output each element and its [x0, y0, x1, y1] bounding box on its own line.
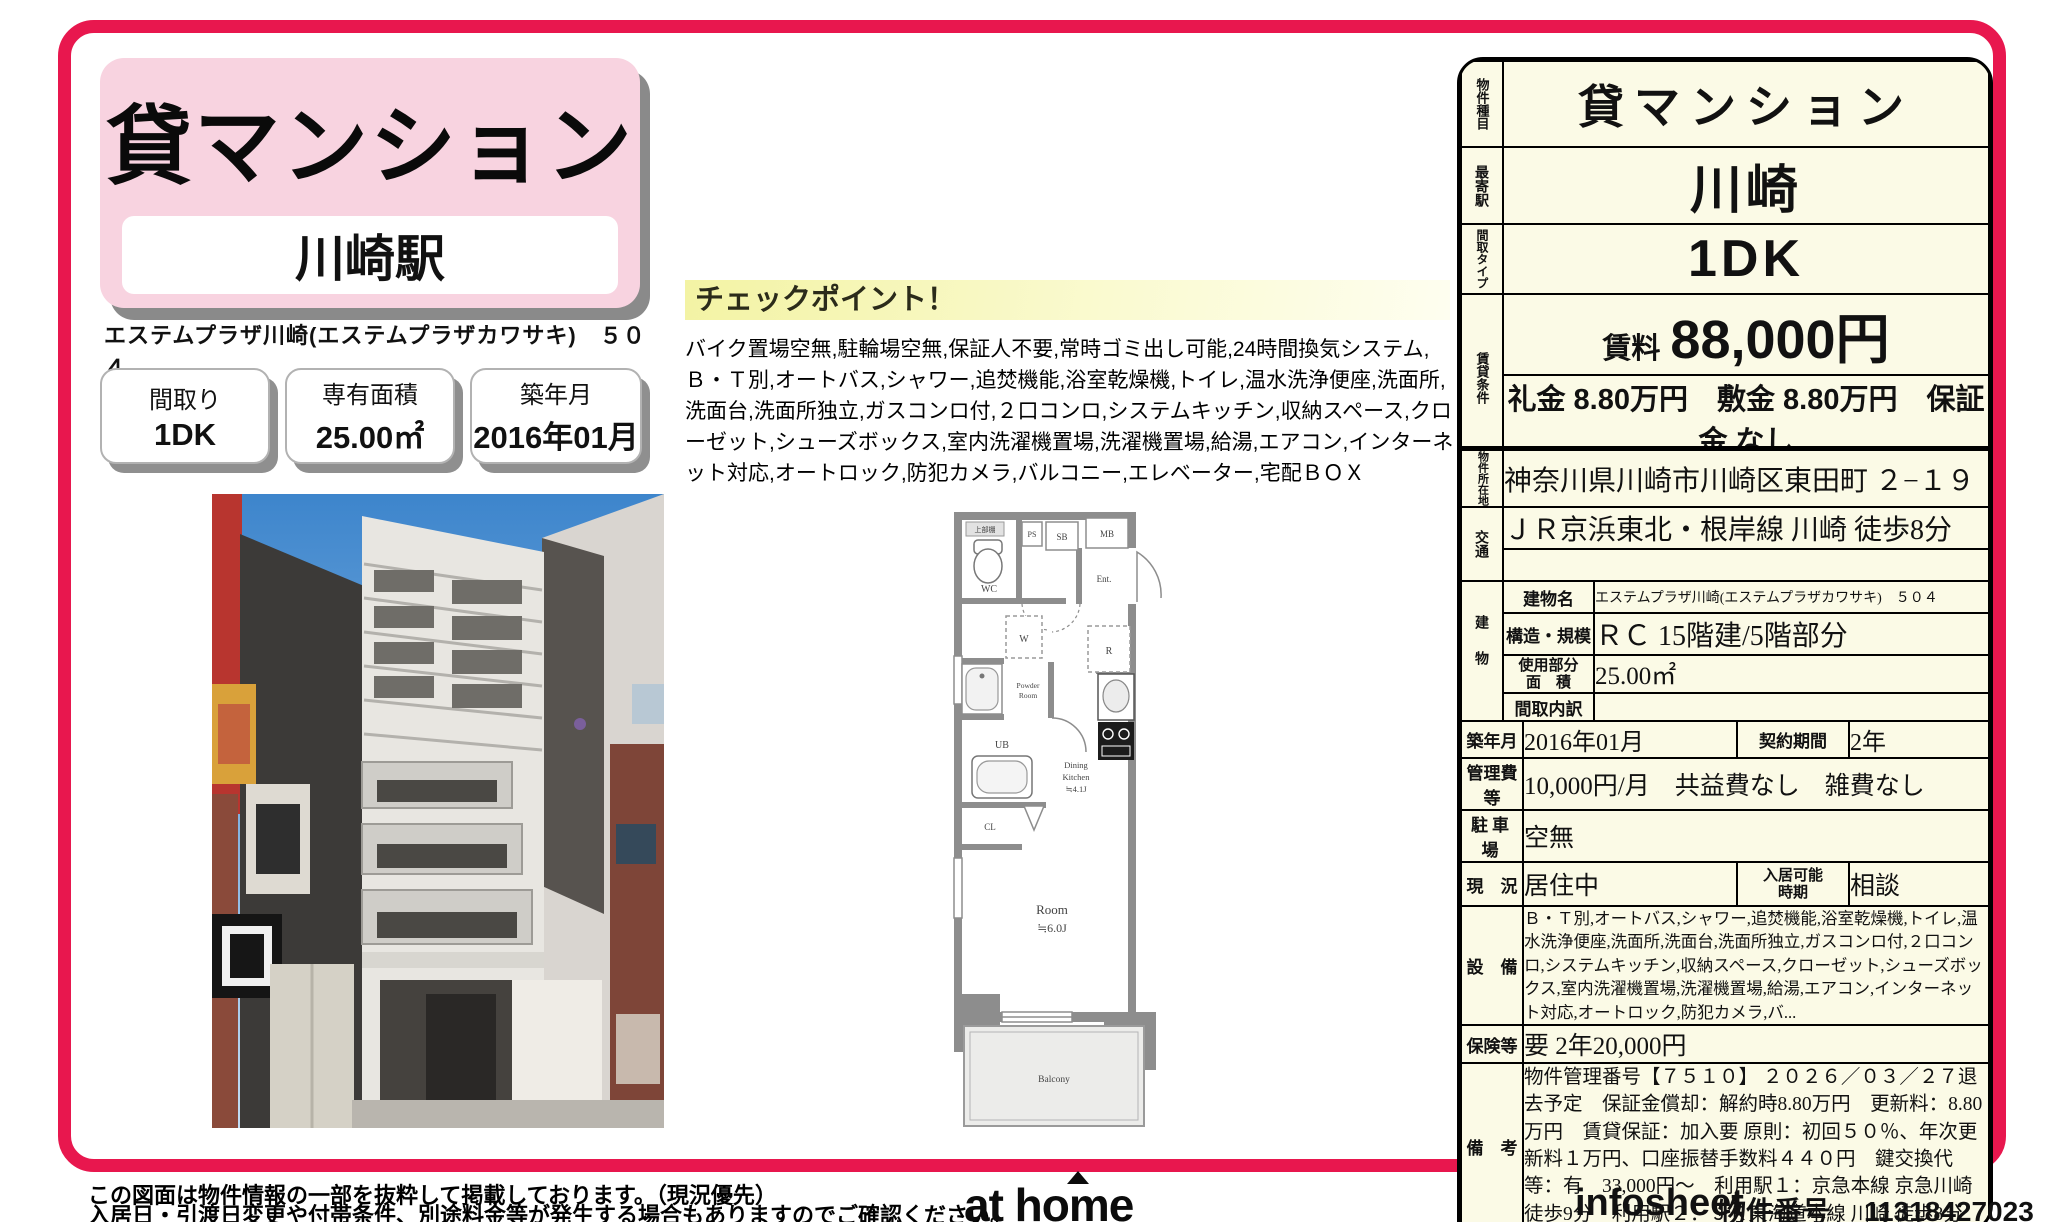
station-box: 川崎駅	[122, 216, 618, 294]
property-type-title: 貸マンション	[100, 76, 640, 201]
label-layout-breakdown: 間取内訳	[1503, 693, 1594, 721]
label-structure: 構造・規模	[1503, 613, 1594, 655]
value-contract-period: 2年	[1849, 721, 1989, 758]
value-access-2	[1503, 549, 1989, 581]
plan-label-washer: W	[1019, 634, 1029, 645]
footer-note-2: 入居日・引渡日変更や付帯条件、別途料金等が発生する場合もありますのでご確認くださ…	[88, 1198, 1012, 1222]
value-move-in: 相談	[1849, 862, 1989, 906]
station-name: 川崎駅	[295, 219, 445, 291]
summary-label: 間取り	[149, 380, 221, 415]
label-rental-terms: 賃貸条件	[1461, 294, 1503, 461]
plan-label-room-1: Room	[1036, 902, 1068, 917]
plan-label-mb: MB	[1100, 529, 1114, 539]
label-location: 物件所在地	[1461, 450, 1503, 507]
plan-label-ub: UB	[995, 740, 1009, 751]
label-property-type: 物件種目	[1461, 61, 1503, 147]
plan-label-room-2: ≒6.0J	[1037, 921, 1067, 935]
plan-label-powder-1: Powder	[1017, 681, 1040, 690]
athome-logo-text: at home	[964, 1179, 1133, 1222]
property-number: 物件番号11318427023	[1718, 1190, 2034, 1222]
plan-label-dk-3: ≒4.1J	[1065, 784, 1087, 794]
detail-table: 物件所在地 神奈川県川崎市川崎区東田町 ２−１９ 交通 ＪＲ京浜東北・根岸線 川…	[1457, 446, 1993, 1222]
summary-value: 1DK	[154, 417, 216, 453]
label-remarks: 備 考	[1461, 1063, 1523, 1222]
summary-label: 専有面積	[322, 375, 418, 410]
label-contract-period: 契約期間	[1737, 721, 1849, 758]
value-nearest-station: 川崎	[1503, 147, 1989, 224]
value-building-name: エステムプラザ川崎(エステムプラザカワサキ) ５０４	[1594, 581, 1989, 613]
building-photo	[212, 494, 664, 1128]
value-parking: 空無	[1523, 810, 1989, 862]
label-building: 建物	[1461, 581, 1503, 721]
value-rent: 賃料88,000円	[1503, 294, 1989, 375]
summary-label: 築年月	[520, 375, 592, 410]
checkpoint-title: チェックポイント！	[685, 280, 1450, 320]
label-access: 交通	[1461, 507, 1503, 581]
value-layout-type: 1DK	[1503, 224, 1989, 294]
summary-value: 2016年01月	[473, 412, 638, 457]
athome-logo: at home	[964, 1178, 1133, 1222]
plan-label-shelf: 上部棚	[975, 525, 996, 534]
value-location: 神奈川県川崎市川崎区東田町 ２−１９	[1503, 450, 1989, 507]
summary-box-built: 築年月 2016年01月	[470, 368, 642, 464]
value-insurance: 要 2年20,000円	[1523, 1025, 1989, 1063]
floor-plan: 上部棚 PS SB MB WC Ent. W R Powder Room	[952, 506, 1164, 1152]
label-insurance: 保険等	[1461, 1025, 1523, 1063]
value-structure: ＲＣ 15階建/5階部分	[1594, 613, 1989, 655]
value-current-status: 居住中	[1523, 862, 1737, 906]
summary-value: 25.00㎡	[316, 412, 425, 457]
plan-label-fridge: R	[1106, 646, 1113, 657]
value-used-area: 25.00㎡	[1594, 655, 1989, 693]
plan-label-ps: PS	[1028, 530, 1037, 539]
label-parking: 駐車場	[1461, 810, 1523, 862]
plan-label-dk-1: Dining	[1064, 760, 1088, 770]
headline-table: 物件種目 貸マンション 最寄駅 川崎 間取タイプ 1DK 賃貸条件 賃料88,0…	[1457, 57, 1993, 465]
plan-label-balcony: Balcony	[1038, 1075, 1070, 1085]
label-built: 築年月	[1461, 721, 1523, 758]
property-number-label: 物件番号	[1718, 1196, 1830, 1222]
plan-label-cl: CL	[984, 822, 996, 832]
label-building-name: 建物名	[1503, 581, 1594, 613]
rent-label: 賃料	[1602, 333, 1660, 365]
summary-box-area: 専有面積 25.00㎡	[285, 368, 455, 464]
plan-label-dk-2: Kitchen	[1063, 772, 1091, 782]
plan-label-entrance: Ent.	[1097, 574, 1112, 584]
plan-label-sb: SB	[1056, 532, 1067, 542]
plan-label-powder-2: Room	[1019, 691, 1038, 700]
value-management-fee: 10,000円/月 共益費なし 雑費なし	[1523, 758, 1989, 810]
value-equipment: Ｂ・Ｔ別,オートバス,シャワー,追焚機能,浴室乾燥機,トイレ,温水洗浄便座,洗面…	[1523, 906, 1989, 1025]
label-management-fee: 管理費等	[1461, 758, 1523, 810]
value-access-1: ＪＲ京浜東北・根岸線 川崎 徒歩8分	[1503, 507, 1989, 549]
rent-amount: 88,000円	[1670, 310, 1889, 370]
value-property-type: 貸マンション	[1503, 61, 1989, 147]
summary-box-layout: 間取り 1DK	[100, 368, 270, 464]
property-infosheet: 貸マンション 川崎駅 エステムプラザ川崎(エステムプラザカワサキ) ５０４ 間取…	[0, 0, 2056, 1222]
plan-label-wc: WC	[981, 584, 997, 595]
athome-roof-icon	[1067, 1171, 1089, 1184]
label-layout-type: 間取タイプ	[1461, 224, 1503, 294]
title-card: 貸マンション 川崎駅	[100, 58, 640, 308]
label-current-status: 現 況	[1461, 862, 1523, 906]
checkpoint-body: バイク置場空無,駐輪場空無,保証人不要,常時ゴミ出し可能,24時間換気システム,…	[685, 334, 1465, 489]
label-equipment: 設 備	[1461, 906, 1523, 1025]
value-built: 2016年01月	[1523, 721, 1737, 758]
property-number-value: 11318427023	[1864, 1196, 2034, 1222]
label-move-in: 入居可能 時期	[1737, 862, 1849, 906]
label-nearest-station: 最寄駅	[1461, 147, 1503, 224]
value-layout-breakdown	[1594, 693, 1989, 721]
label-used-area: 使用部分 面 積	[1503, 655, 1594, 693]
